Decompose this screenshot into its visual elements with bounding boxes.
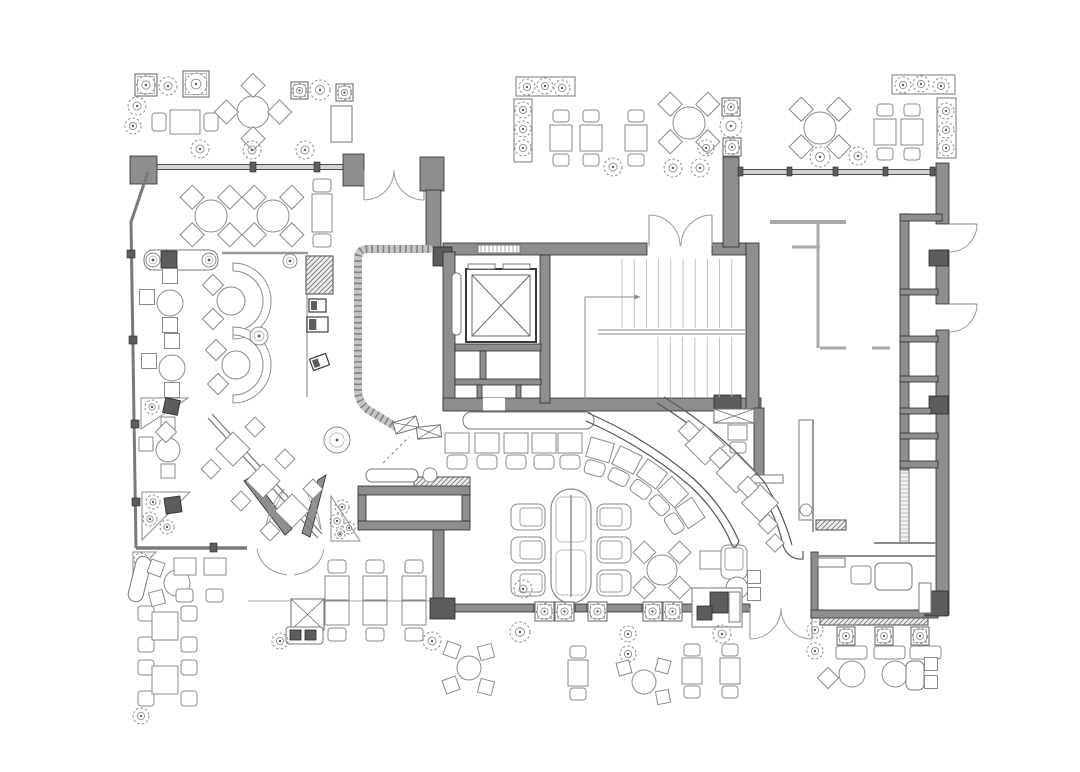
chair	[140, 290, 155, 305]
table-for-two	[170, 110, 200, 134]
drawn-line	[784, 548, 803, 559]
chair	[442, 676, 460, 694]
door-swing	[949, 304, 977, 332]
table-column	[328, 628, 346, 641]
table-for-two	[877, 148, 893, 160]
door-swing	[649, 215, 680, 246]
wall-segment	[444, 604, 534, 612]
chair	[139, 437, 153, 451]
round-table-with-chairs	[195, 200, 227, 232]
door-swing	[781, 608, 812, 639]
round-table	[800, 504, 812, 516]
table-column	[328, 560, 346, 573]
table	[445, 433, 469, 453]
chair	[165, 334, 180, 349]
wall-segment	[426, 190, 441, 248]
chair	[231, 491, 251, 511]
fixture	[919, 583, 931, 613]
armchair	[597, 504, 631, 530]
wall-segment	[900, 433, 938, 439]
wall-segment	[754, 408, 764, 482]
chair	[477, 643, 494, 660]
table	[568, 660, 588, 686]
wall-tick	[250, 162, 256, 172]
table-for-two	[901, 119, 923, 145]
chair	[163, 269, 178, 284]
table-for-two	[580, 125, 602, 151]
wall-tick	[210, 543, 217, 552]
round-table	[457, 656, 481, 680]
fixture	[468, 264, 495, 269]
armchair	[597, 570, 631, 596]
drawn-line	[483, 398, 505, 411]
textured-partition	[358, 249, 429, 427]
wall-tick	[883, 167, 888, 176]
fixture	[503, 264, 530, 269]
chair	[142, 354, 157, 369]
table-column	[363, 601, 387, 625]
column-block	[710, 592, 728, 613]
table-for-two	[204, 113, 218, 131]
round-table	[222, 351, 250, 379]
crossed-fixture	[714, 409, 754, 423]
chair	[520, 508, 542, 526]
table-for-two	[874, 119, 896, 145]
drawn-line	[257, 549, 287, 575]
round-table-with-chairs	[237, 96, 269, 128]
column-block	[311, 301, 317, 310]
stair-direction-arrow	[585, 297, 640, 404]
crossed-fixture	[291, 599, 324, 630]
table-for-two	[877, 104, 893, 116]
chair	[443, 641, 461, 659]
table-for-two	[625, 125, 647, 151]
chair	[836, 646, 867, 659]
drawn-line	[383, 437, 409, 463]
table	[682, 658, 702, 684]
floor-plan-page	[0, 0, 1080, 772]
column-block	[290, 630, 301, 640]
chair	[851, 566, 871, 584]
chair	[600, 574, 622, 592]
chair	[874, 646, 905, 659]
fixture	[478, 245, 520, 253]
table-with-chair	[662, 497, 705, 537]
table	[586, 437, 615, 463]
wall-tick	[127, 250, 135, 258]
chair	[817, 667, 838, 688]
table	[558, 433, 582, 453]
chair	[748, 588, 761, 601]
table-with-chair	[581, 437, 614, 478]
corner-column	[130, 156, 157, 184]
table-for-two	[553, 110, 569, 122]
chair	[165, 383, 180, 398]
table	[504, 433, 528, 453]
wall-segment	[900, 408, 931, 414]
wall-segment	[936, 330, 949, 615]
chair	[206, 589, 223, 602]
chair	[148, 589, 165, 606]
counter-equipment	[307, 317, 328, 332]
chair	[181, 637, 197, 652]
column-block	[163, 398, 181, 416]
chair	[725, 548, 743, 570]
chair	[241, 127, 265, 151]
chair	[730, 442, 746, 453]
fixture	[127, 555, 153, 603]
round-table	[159, 355, 185, 381]
round-table-with-chairs	[647, 555, 677, 585]
round-table-with-chairs	[673, 107, 705, 139]
round-table-with-chairs	[804, 112, 836, 144]
column-block	[430, 598, 455, 619]
wall-segment	[540, 255, 550, 403]
chair	[570, 688, 586, 700]
wall-tick	[930, 167, 935, 176]
chair	[684, 686, 700, 698]
table-with-chair	[475, 433, 499, 469]
table-with-chair	[558, 433, 582, 469]
table-for-two	[313, 179, 331, 192]
table	[152, 666, 178, 694]
wall-segment	[420, 157, 444, 191]
wall-segment	[480, 351, 486, 379]
wall-segment	[900, 461, 938, 468]
wall-segment	[746, 243, 759, 411]
drawn-line	[294, 549, 324, 575]
door-swing	[949, 224, 977, 252]
chair	[520, 541, 542, 559]
column-block	[929, 250, 948, 266]
wall-segment	[358, 521, 470, 530]
wall-segment	[682, 604, 692, 612]
table-for-two	[904, 148, 920, 160]
table	[700, 551, 722, 569]
chair	[181, 660, 197, 675]
chair	[722, 644, 738, 656]
chair	[241, 73, 265, 97]
wall-tick	[787, 167, 792, 176]
counter-equipment	[309, 299, 326, 312]
textured-partition	[358, 249, 429, 427]
chair	[477, 678, 494, 695]
wall-tick	[833, 167, 838, 176]
table	[532, 433, 556, 453]
fixture	[463, 412, 594, 429]
armchair	[721, 545, 747, 579]
fixture	[906, 661, 924, 690]
table-column	[405, 628, 423, 641]
chair	[600, 541, 622, 559]
wall-segment	[900, 214, 942, 221]
wall-tick	[738, 167, 743, 176]
door-swing	[394, 170, 424, 200]
chair	[447, 455, 467, 469]
chair	[181, 691, 197, 706]
chair	[616, 660, 632, 676]
counter-equipment	[309, 353, 329, 370]
chair	[275, 449, 295, 469]
table-column	[366, 560, 384, 573]
table	[475, 433, 499, 453]
chair	[684, 644, 700, 656]
column-block	[305, 630, 316, 640]
round-table	[882, 661, 908, 687]
wall-segment	[358, 495, 366, 523]
wall-segment	[575, 604, 587, 612]
wall-segment	[900, 336, 938, 342]
table-for-two	[628, 154, 644, 166]
column-block	[309, 319, 316, 330]
table-column	[325, 601, 349, 625]
fixture	[729, 592, 740, 622]
chair	[560, 455, 580, 469]
wall-segment	[900, 289, 938, 295]
wall-segment	[358, 486, 470, 495]
table-for-two	[553, 154, 569, 166]
column-block	[164, 496, 182, 514]
chair	[722, 686, 738, 698]
table	[174, 558, 196, 575]
table	[152, 612, 178, 640]
chair	[655, 658, 671, 674]
wall-segment	[433, 530, 444, 606]
chair	[245, 417, 265, 437]
door-swing	[364, 170, 394, 200]
chair	[161, 464, 175, 478]
wall-segment	[742, 604, 750, 612]
table-column	[366, 628, 384, 641]
round-table	[157, 290, 183, 316]
table	[204, 558, 226, 575]
table-with-chair	[445, 433, 469, 469]
wall-segment	[900, 376, 938, 382]
wall-tick	[131, 420, 139, 428]
chair	[205, 339, 226, 360]
chair	[506, 455, 526, 469]
table	[720, 658, 740, 684]
wall-segment	[607, 604, 642, 612]
chair	[246, 464, 280, 498]
wall-segment	[462, 495, 470, 521]
outdoor-terrace-top	[125, 71, 956, 177]
column	[343, 154, 364, 186]
table-with-chair	[532, 433, 556, 469]
wall-tick	[129, 336, 137, 344]
table-column	[402, 576, 426, 600]
wall-tick	[132, 498, 140, 506]
round-table-with-chairs	[257, 200, 289, 232]
wall-tick	[314, 162, 320, 172]
table-with-chair	[504, 433, 528, 469]
chair	[655, 689, 670, 704]
table-for-two	[313, 234, 331, 247]
round-table	[217, 287, 245, 315]
table-for-two	[583, 110, 599, 122]
wall-segment	[455, 344, 541, 351]
round-table	[156, 438, 180, 462]
fixture	[875, 563, 912, 590]
round-table	[839, 661, 865, 687]
fixture	[366, 469, 418, 482]
chair	[207, 373, 228, 394]
table-column	[405, 560, 423, 573]
armchair	[511, 537, 545, 563]
wall-segment	[811, 552, 818, 618]
chair	[163, 318, 178, 333]
chair	[268, 100, 292, 124]
wall-segment	[477, 385, 482, 398]
table-for-two	[583, 154, 599, 166]
fixture	[309, 353, 329, 370]
table-column	[402, 601, 426, 625]
chair	[216, 432, 250, 466]
table-column	[363, 576, 387, 600]
chair	[534, 455, 554, 469]
door-swing	[681, 215, 712, 246]
round-table	[423, 468, 437, 482]
door-swing	[750, 608, 781, 639]
table	[728, 425, 747, 440]
chair	[477, 455, 497, 469]
table-for-two	[312, 194, 332, 232]
chair	[600, 508, 622, 526]
wall-segment	[723, 157, 739, 247]
crossed-fixture	[393, 416, 419, 434]
armchair	[511, 504, 545, 530]
chair	[201, 459, 221, 479]
round-table	[632, 670, 656, 694]
fixture	[818, 558, 845, 567]
chair	[748, 571, 761, 584]
chair	[925, 676, 938, 689]
wall-segment	[516, 385, 521, 398]
chair	[925, 658, 938, 671]
chair	[181, 606, 197, 621]
wall-segment	[443, 243, 647, 255]
column-block	[161, 251, 177, 268]
wall-segment	[455, 379, 541, 385]
chair	[570, 646, 586, 658]
chair	[202, 308, 223, 329]
stair-direction-arrow	[635, 294, 640, 299]
fixture	[452, 273, 461, 335]
fixture	[331, 106, 352, 142]
floor-plan-drawing	[0, 0, 1080, 772]
table-for-two	[550, 125, 572, 151]
column-block	[697, 606, 712, 620]
table-column	[325, 576, 349, 600]
column-block	[929, 396, 948, 414]
armchair	[597, 537, 631, 563]
table-for-two	[152, 113, 166, 131]
table-for-two	[628, 110, 644, 122]
chair	[176, 589, 193, 602]
table-for-two	[904, 104, 920, 116]
crossed-fixture	[416, 425, 441, 439]
